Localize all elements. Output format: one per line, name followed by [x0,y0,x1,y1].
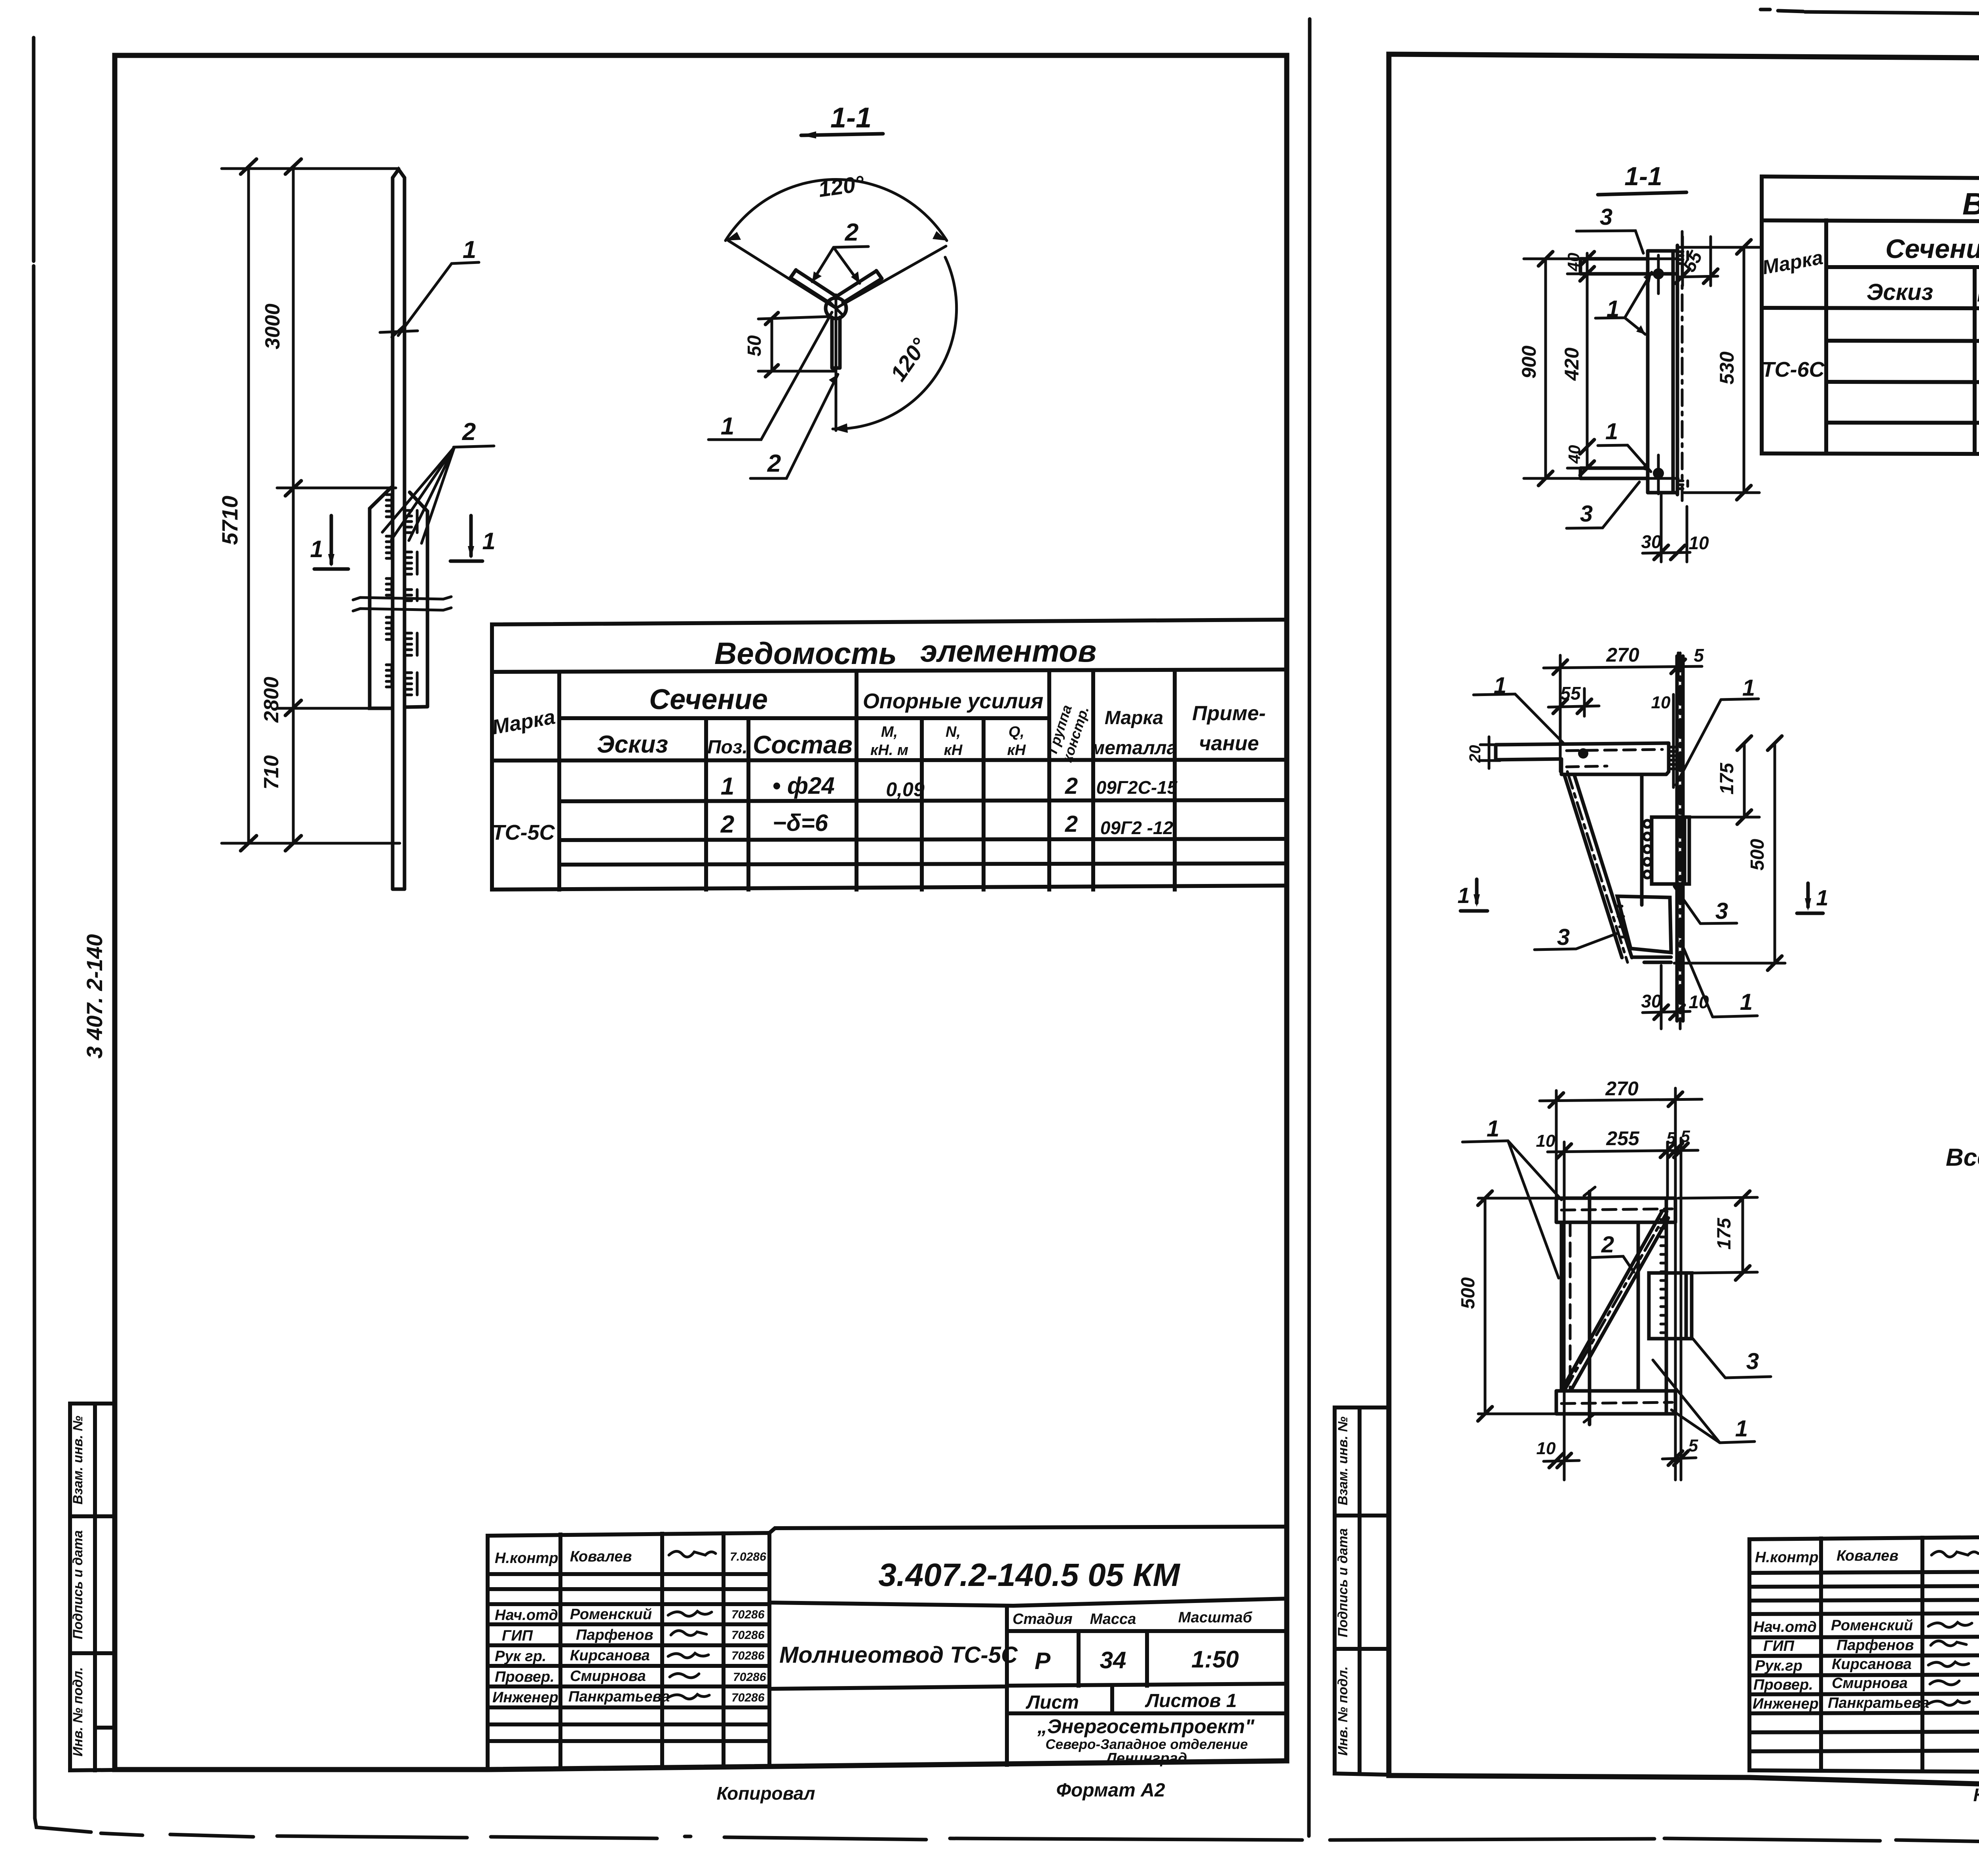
svg-text:1-1: 1-1 [830,102,872,134]
svg-text:Панкратьева: Панкратьева [1828,1695,1929,1711]
svg-text:Подпись и дата: Подпись и дата [1335,1528,1350,1637]
svg-text:Ленинград: Ленинград [1105,1750,1187,1767]
svg-text:Панкратьева: Панкратьева [568,1688,670,1705]
svg-text:Ковалев: Ковалев [570,1548,632,1565]
svg-text:70286: 70286 [731,1629,765,1642]
svg-text:кН: кН [944,742,963,759]
svg-text:Ведомость: Ведомость [1962,186,1979,221]
svg-text:Поз.: Поз. [707,737,748,758]
svg-text:500: 500 [1747,839,1768,871]
svg-text:М,: М, [881,724,898,740]
svg-text:70286: 70286 [731,1649,765,1662]
svg-text:Молниеотвод ТС-5С: Молниеотвод ТС-5С [779,1642,1018,1668]
svg-text:1: 1 [1487,1116,1499,1142]
svg-text:09Г2С-15: 09Г2С-15 [1096,777,1178,798]
svg-text:710: 710 [260,755,283,790]
svg-text:175: 175 [1717,763,1738,795]
svg-text:Листов 1: Листов 1 [1145,1690,1236,1711]
svg-text:Подпись и дата: Подпись и дата [70,1530,85,1639]
svg-text:3: 3 [1715,898,1728,924]
svg-text:N,: N, [946,724,961,740]
svg-text:Провер.: Провер. [1753,1677,1813,1693]
svg-text:металла: металла [1091,738,1178,759]
svg-text:кН: кН [1007,742,1026,759]
svg-text:чание: чание [1199,732,1259,755]
svg-text:1: 1 [310,536,323,562]
svg-text:ГИП: ГИП [1763,1638,1795,1654]
svg-text:10: 10 [1536,1131,1555,1151]
svg-text:1: 1 [721,413,734,440]
svg-text:Смирнова: Смирнова [570,1668,646,1684]
svg-text:3.407.2-140.5 05 КМ: 3.407.2-140.5 05 КМ [878,1557,1180,1593]
svg-text:70286: 70286 [731,1691,765,1704]
svg-text:50: 50 [744,335,765,357]
svg-text:Инв. № подл.: Инв. № подл. [1335,1666,1350,1756]
svg-text:Сечение: Сечение [1885,234,1979,264]
svg-text:Лист: Лист [1026,1692,1079,1713]
svg-text:Поз.: Поз. [1977,285,1979,306]
svg-text:1: 1 [1742,675,1755,701]
svg-text:Ковалев: Ковалев [1837,1548,1898,1564]
svg-text:5: 5 [1694,645,1704,666]
svg-text:2: 2 [1065,773,1078,799]
svg-text:10: 10 [1688,533,1709,553]
svg-text:530: 530 [1716,351,1738,385]
svg-text:Смирнова: Смирнова [1832,1675,1908,1692]
svg-text:1: 1 [1740,989,1753,1015]
svg-text:34: 34 [1100,1647,1126,1673]
svg-text:Рук гр.: Рук гр. [495,1648,546,1665]
svg-text:Взам. инв. №: Взам. инв. № [1335,1417,1350,1506]
svg-text:0,09: 0,09 [886,778,925,800]
svg-text:Инженер: Инженер [1753,1696,1819,1712]
svg-text:Инженер: Инженер [492,1689,558,1706]
svg-text:Инв. № подл.: Инв. № подл. [70,1667,85,1756]
svg-text:3000: 3000 [261,303,284,349]
svg-text:2: 2 [845,219,858,246]
svg-text:Рук.гр: Рук.гр [1755,1658,1802,1674]
svg-text:Опорные усилия: Опорные усилия [863,689,1043,713]
svg-text:175: 175 [1714,1218,1735,1250]
svg-text:2: 2 [1065,811,1078,837]
svg-text:10: 10 [1688,992,1709,1012]
svg-text:Состав: Состав [753,730,853,759]
svg-text:Масса: Масса [1090,1611,1136,1628]
svg-text:3: 3 [1580,501,1593,527]
svg-text:2: 2 [720,811,734,838]
svg-text:2: 2 [1601,1232,1614,1258]
svg-text:Роменский: Роменский [570,1606,652,1623]
svg-text:Эскиз: Эскиз [597,731,668,758]
svg-text:Н.контр.: Н.контр. [1755,1549,1823,1566]
svg-text:ТС-5С: ТС-5С [492,821,555,844]
svg-text:Марка: Марка [1105,708,1163,728]
svg-text:5: 5 [1666,1129,1676,1147]
svg-text:Провер.: Провер. [495,1669,555,1685]
svg-text:кН. м: кН. м [870,742,908,759]
svg-text:1: 1 [1605,419,1618,444]
svg-text:70286: 70286 [731,1608,765,1621]
svg-text:1: 1 [721,773,734,800]
svg-text:500: 500 [1458,1277,1479,1309]
svg-text:1: 1 [482,528,495,554]
svg-text:5710: 5710 [217,496,242,545]
svg-text:40: 40 [1565,445,1584,464]
svg-text:5: 5 [1681,1127,1690,1146]
svg-text:Приме-: Приме- [1192,702,1266,725]
svg-text:Эскиз: Эскиз [1867,279,1933,305]
svg-text:Сечение: Сечение [649,684,768,715]
svg-text:1-1: 1-1 [1624,161,1662,191]
svg-text:30: 30 [1641,991,1662,1011]
svg-text:ГИП: ГИП [502,1628,533,1644]
svg-text:Формат А2: Формат А2 [1056,1780,1165,1801]
svg-text:255: 255 [1606,1127,1640,1150]
svg-text:Нач.отд: Нач.отд [1753,1619,1817,1635]
svg-text:2: 2 [462,418,476,446]
svg-text:10: 10 [1651,693,1671,712]
svg-text:элементов: элементов [920,634,1096,668]
svg-text:Стадия: Стадия [1012,1611,1072,1628]
svg-text:900: 900 [1518,345,1540,379]
svg-text:Масштаб: Масштаб [1178,1609,1253,1626]
svg-text:2: 2 [767,450,781,477]
svg-text:3: 3 [1746,1349,1759,1374]
svg-text:1: 1 [1816,885,1828,910]
svg-text:1: 1 [1735,1416,1748,1442]
svg-text:270: 270 [1605,1077,1639,1100]
svg-text:3: 3 [1557,924,1570,950]
svg-text:Р: Р [1035,1648,1051,1674]
svg-text:Копировал: Копировал [717,1783,815,1804]
svg-text:Q,: Q, [1008,724,1024,740]
svg-text:2800: 2800 [260,677,283,723]
svg-text:Кирсанова: Кирсанова [1832,1656,1912,1673]
svg-text:Кирсанова: Кирсанова [570,1647,650,1664]
svg-text:3: 3 [1600,204,1612,230]
svg-text:70286: 70286 [733,1671,766,1684]
svg-text:ТС-6С: ТС-6С [1762,358,1825,381]
svg-text:Взам. инв. №: Взам. инв. № [70,1416,85,1505]
svg-text:1: 1 [463,236,476,264]
svg-text:Парфенов: Парфенов [576,1627,653,1643]
svg-text:Роменский: Роменский [1831,1617,1913,1634]
svg-text:Все отверстия ф21+0,6мм.: Все отверстия ф21+0,6мм. [1946,1140,1979,1172]
svg-text:Парфенов: Парфенов [1837,1637,1914,1654]
svg-text:20: 20 [1466,745,1484,763]
svg-text:30: 30 [1641,531,1662,552]
svg-text:Нач.отд: Нач.отд [495,1607,558,1624]
svg-text:3 407. 2-140: 3 407. 2-140 [82,934,107,1058]
svg-text:7.0286: 7.0286 [730,1550,766,1563]
svg-text:10: 10 [1536,1439,1556,1458]
svg-text:Копировал: Копировал [1973,1785,1979,1805]
svg-text:5: 5 [1688,1436,1698,1455]
svg-text:„Энергосетьпроект": „Энергосетьпроект" [1037,1715,1255,1738]
svg-text:Н.контр: Н.контр [495,1550,558,1567]
svg-text:55: 55 [1560,683,1581,704]
svg-text:• ф24: • ф24 [772,772,835,799]
svg-text:270: 270 [1606,644,1639,666]
svg-text:Ведомость: Ведомость [714,636,897,671]
svg-text:1:50: 1:50 [1191,1646,1239,1673]
svg-text:−δ=6: −δ=6 [773,810,828,836]
svg-text:09Г2 -12: 09Г2 -12 [1100,818,1174,838]
svg-text:420: 420 [1561,347,1583,381]
svg-text:1: 1 [1457,883,1470,908]
